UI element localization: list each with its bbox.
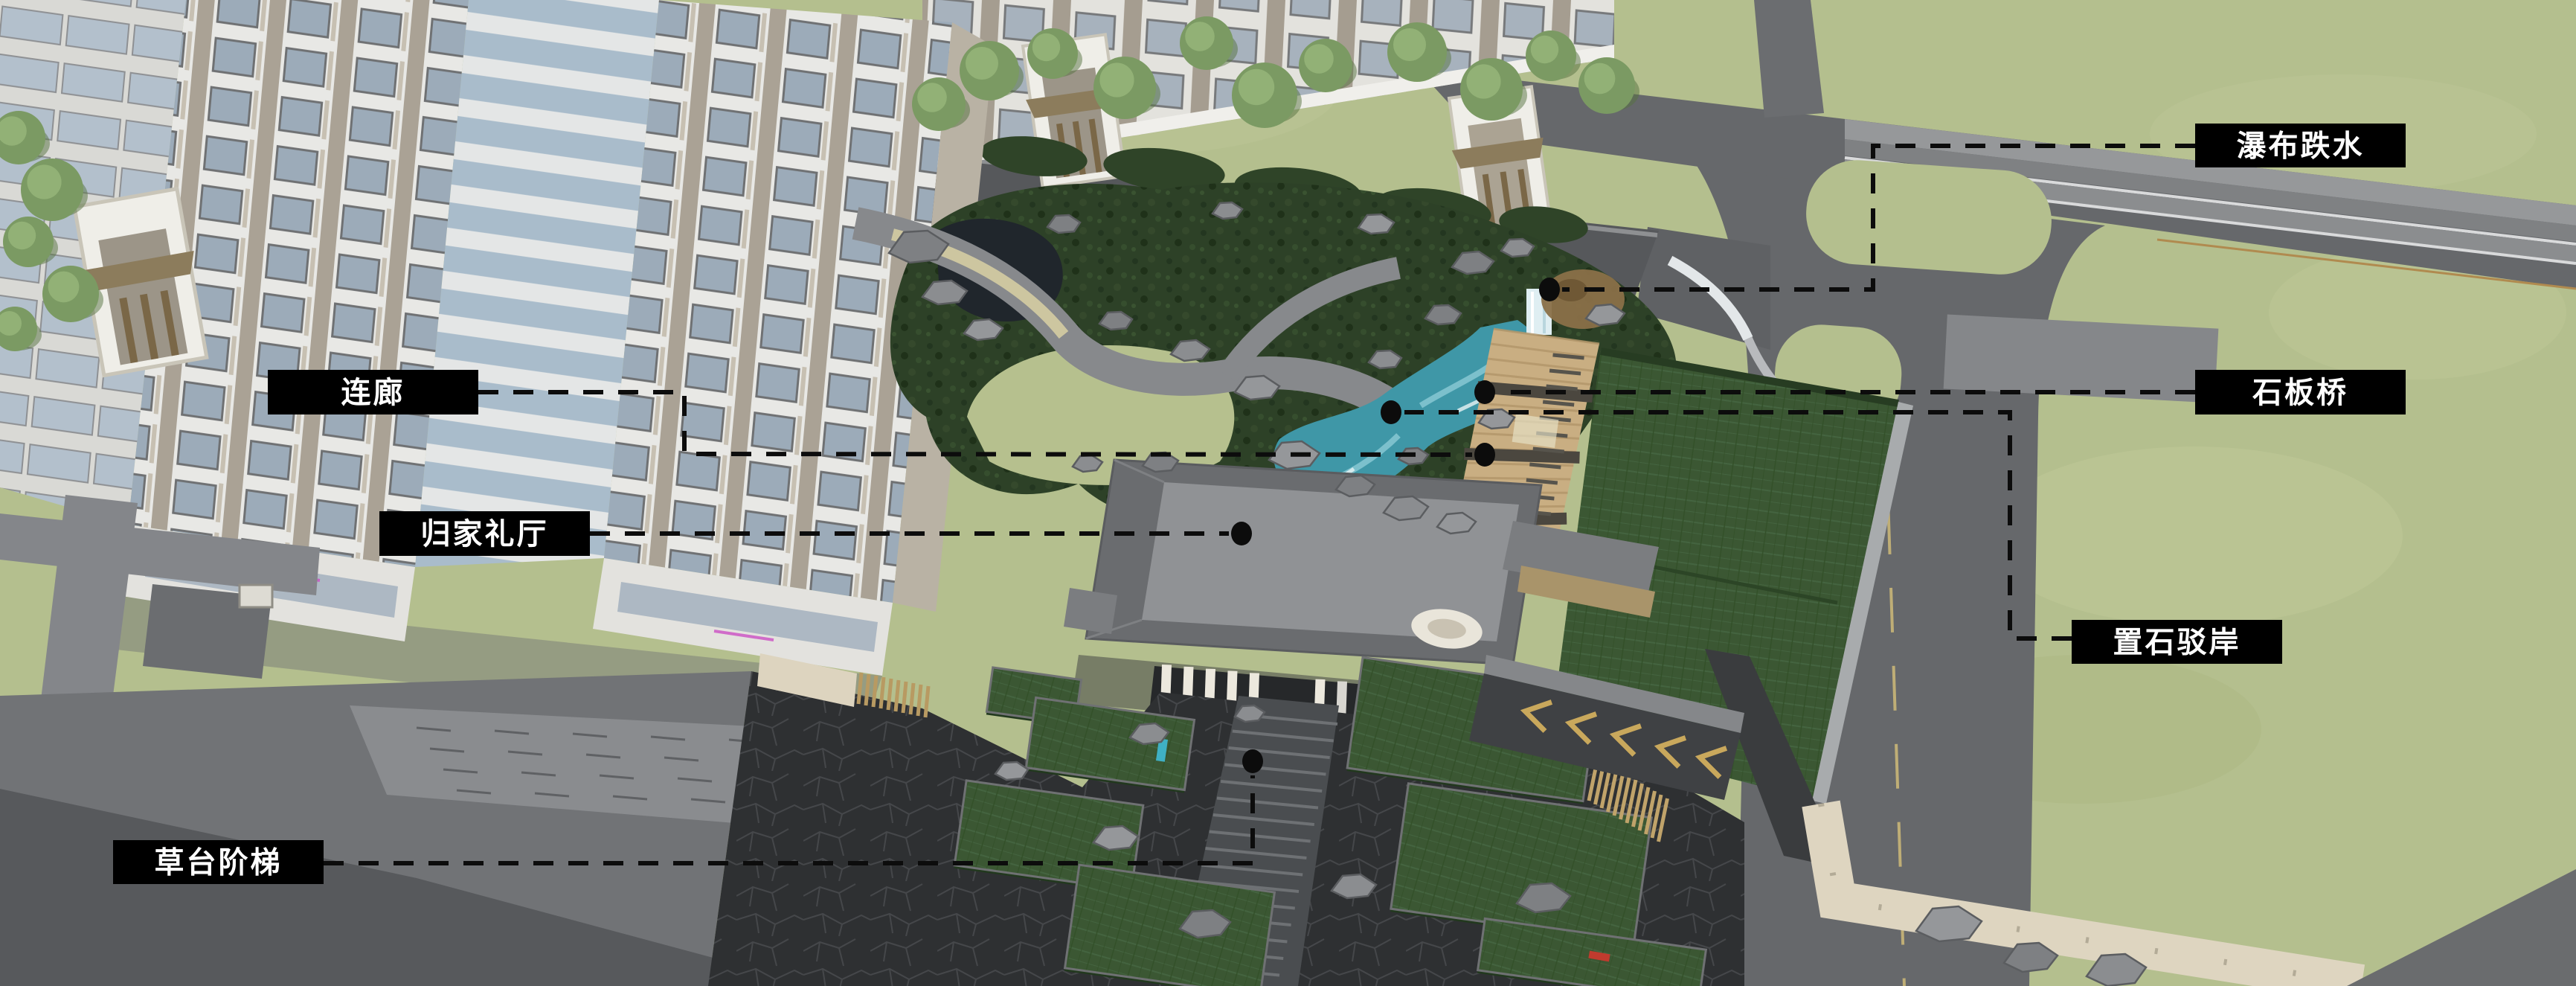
paved-pad <box>1944 315 2219 403</box>
label-text-waterfall-cascade: 瀑布跌水 <box>2237 130 2365 163</box>
label-text-stone-slab-bridge: 石板桥 <box>2252 377 2348 409</box>
tree-canopy-highlight <box>1304 44 1334 74</box>
tree-canopy-highlight <box>1531 36 1558 63</box>
label-text-rock-revetment: 置石驳岸 <box>2113 627 2241 659</box>
deck-plank <box>1464 478 1570 479</box>
deck-light-inset <box>1512 414 1559 448</box>
tree-canopy-highlight <box>27 164 61 199</box>
anchor-dot-waterfall-cascade <box>1539 278 1560 301</box>
lawn-island-upper <box>1803 157 2055 278</box>
label-text-homecoming-hall: 归家礼厅 <box>421 518 549 551</box>
tree-canopy-highlight <box>1466 64 1500 98</box>
anchor-dot-link-corridor <box>1474 443 1495 467</box>
site-plan-rendering: 瀑布跌水石板桥置石驳岸连廊归家礼厅草台阶梯 <box>0 0 2576 986</box>
lawn-highlight <box>1986 446 2403 625</box>
side-canopy-west <box>1064 588 1117 634</box>
signboard <box>240 585 272 607</box>
tree-canopy-highlight <box>1032 33 1060 61</box>
tree-canopy-highlight <box>8 222 36 249</box>
label-text-grass-terrace-steps: 草台阶梯 <box>155 847 283 880</box>
tree-canopy-highlight <box>1099 63 1134 97</box>
anchor-dot-stone-slab-bridge <box>1474 380 1495 404</box>
anchor-dot-homecoming-hall <box>1231 522 1252 545</box>
tree-canopy-highlight <box>1584 63 1616 95</box>
label-text-link-corridor: 连廊 <box>341 377 405 409</box>
tree-canopy-highlight <box>48 272 80 303</box>
tree-canopy-highlight <box>917 83 947 112</box>
rendering-canvas: 瀑布跌水石板桥置石驳岸连廊归家礼厅草台阶梯 <box>0 0 2576 986</box>
tree-canopy-highlight <box>1185 22 1215 51</box>
anchor-dot-grass-terrace-steps <box>1242 749 1263 773</box>
tree-canopy-highlight <box>1393 28 1426 61</box>
anchor-dot-rock-revetment <box>1381 400 1401 424</box>
tree-canopy-highlight <box>1239 69 1274 105</box>
tree-canopy-highlight <box>966 47 998 80</box>
